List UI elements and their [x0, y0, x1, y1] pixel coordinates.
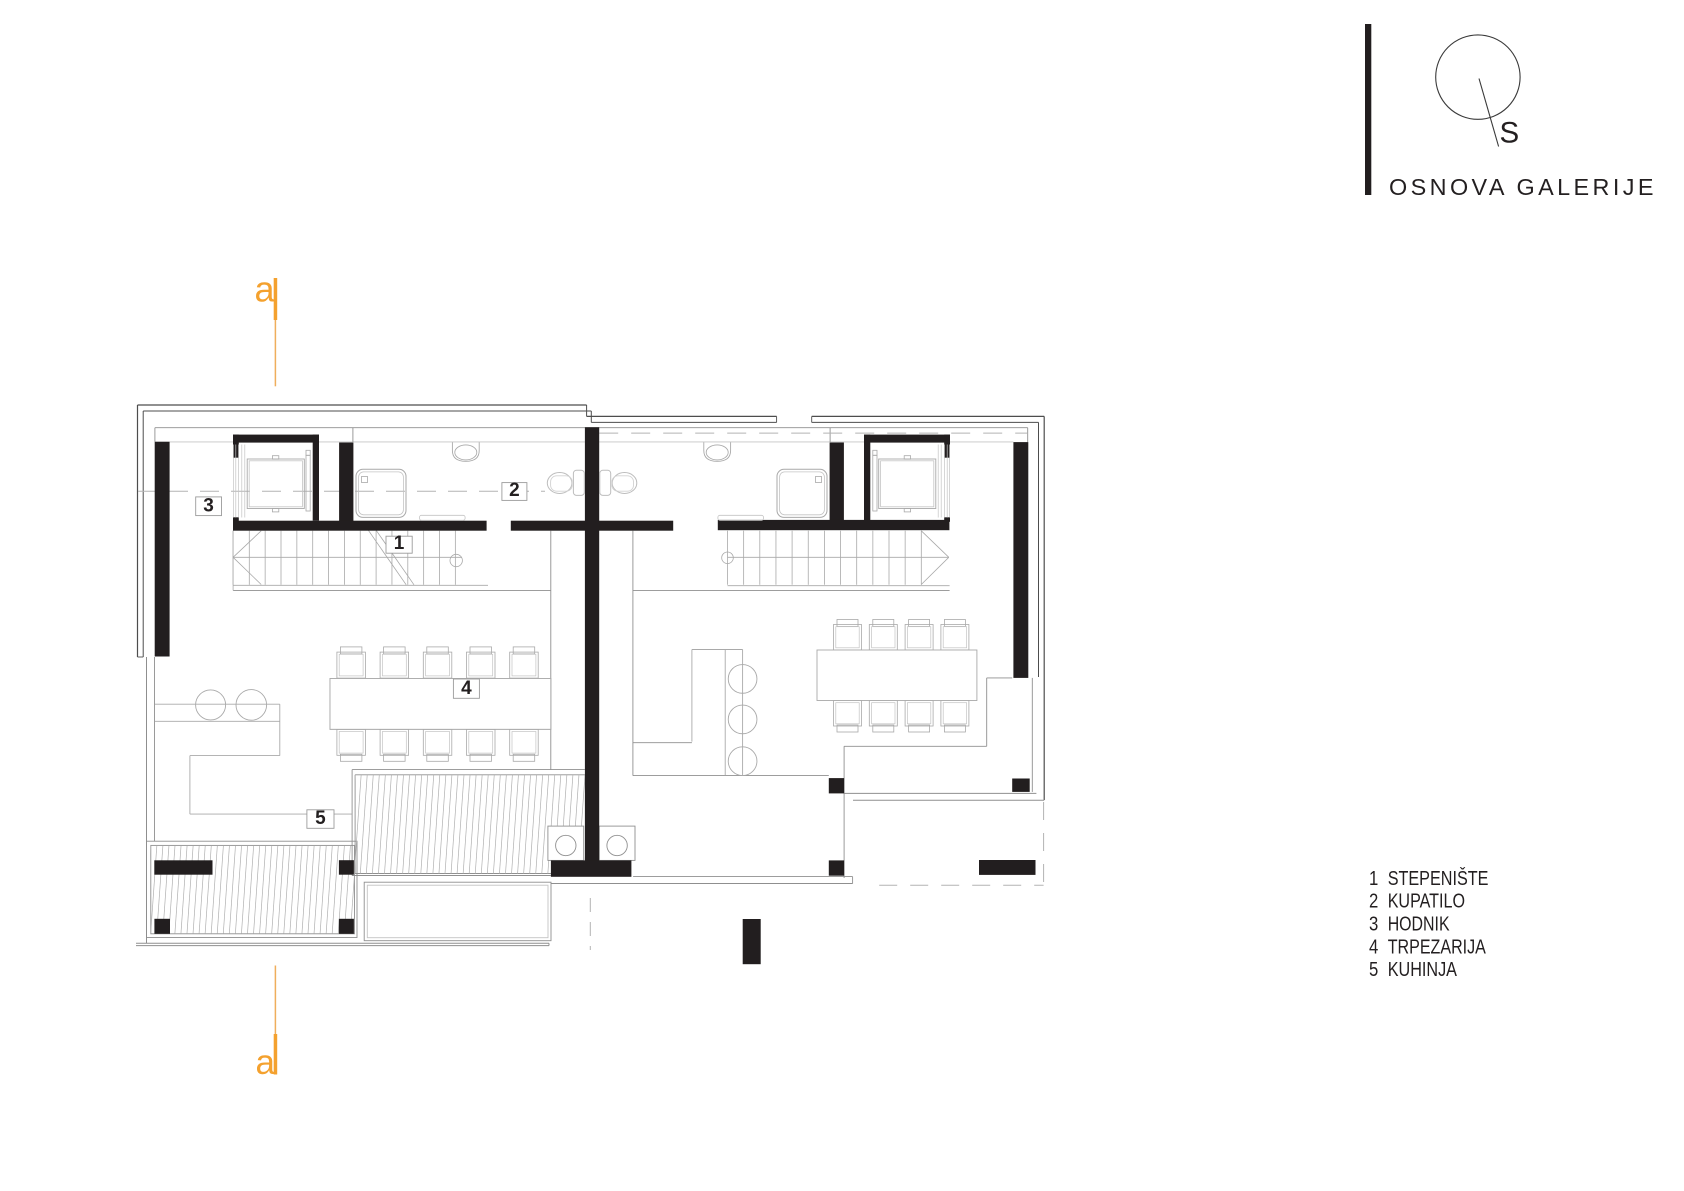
svg-text:5: 5: [315, 808, 326, 829]
svg-text:OSNOVA GALERIJE: OSNOVA GALERIJE: [1389, 174, 1654, 200]
svg-text:HODNIK: HODNIK: [1388, 914, 1450, 936]
svg-text:S: S: [1500, 117, 1520, 150]
svg-text:1: 1: [1369, 868, 1378, 890]
svg-text:4: 4: [461, 678, 472, 699]
svg-text:a: a: [255, 269, 276, 310]
svg-text:a: a: [256, 1043, 276, 1082]
svg-text:2: 2: [509, 480, 520, 501]
svg-text:KUPATILO: KUPATILO: [1388, 891, 1465, 913]
svg-text:5: 5: [1369, 959, 1378, 981]
svg-text:KUHINJA: KUHINJA: [1388, 959, 1458, 981]
svg-text:3: 3: [1369, 914, 1378, 936]
svg-text:2: 2: [1369, 891, 1378, 913]
svg-text:3: 3: [203, 495, 214, 516]
svg-text:STEPENIŠTE: STEPENIŠTE: [1388, 867, 1489, 890]
svg-text:TRPEZARIJA: TRPEZARIJA: [1388, 936, 1487, 958]
svg-text:4: 4: [1369, 936, 1378, 958]
svg-text:1: 1: [394, 533, 405, 554]
